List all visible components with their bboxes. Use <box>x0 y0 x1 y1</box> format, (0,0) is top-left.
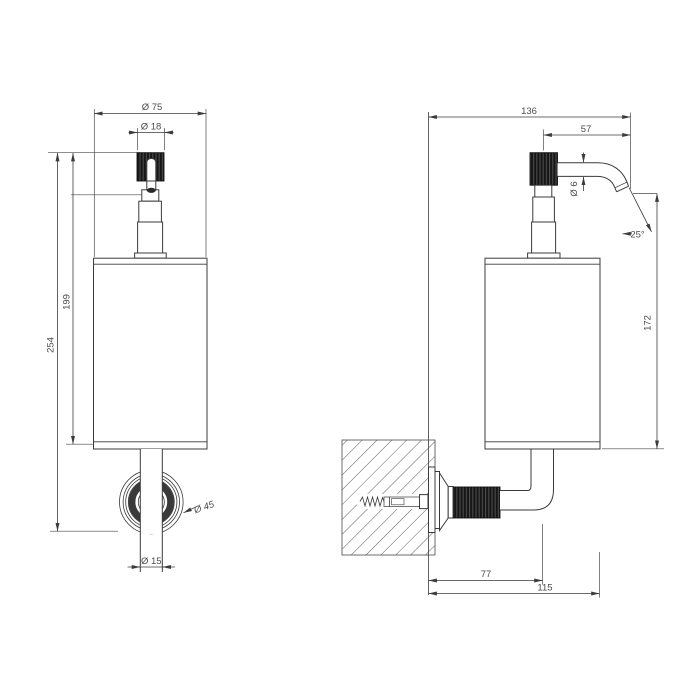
spout-channel-front <box>147 159 156 182</box>
spout-outlet-front <box>147 188 156 193</box>
dim-label-overall-height: 254 <box>46 337 57 353</box>
pump-tube-lower-side <box>532 222 556 253</box>
dim-label-tube-diameter: Ø 15 <box>141 556 162 567</box>
pump-tube-upper-front <box>139 201 162 222</box>
front-view: Ø 75 Ø 18 199 254 Ø 45 <box>46 102 217 572</box>
dim-label-spout-diameter: Ø 6 <box>569 181 580 196</box>
dim-front-flange-diameter: Ø 45 <box>184 499 217 517</box>
technical-drawing-canvas: Ø 75 Ø 18 199 254 Ø 45 <box>0 0 700 700</box>
bottle-body-front <box>94 258 208 449</box>
screw-head <box>420 495 429 509</box>
pump-tube-lower-front <box>138 222 163 253</box>
dim-label-spout-to-base-height: 172 <box>643 315 654 331</box>
wall-screw <box>357 494 434 509</box>
bottle-body-side <box>485 258 600 449</box>
pump-base-flange-front <box>135 253 167 258</box>
elbow-tube-side <box>500 449 554 510</box>
pump-neck-side <box>535 185 552 197</box>
pump-base-flange-side <box>528 253 560 258</box>
dim-label-body-diameter: Ø 75 <box>142 102 163 113</box>
dim-front-pump-height: 199 <box>62 153 95 444</box>
dim-label-overall-depth: 136 <box>521 106 537 117</box>
pump-knob-side <box>530 153 558 186</box>
dim-label-spout-reach: 57 <box>581 124 592 135</box>
dim-front-tube-diameter: Ø 15 <box>128 556 176 567</box>
knurled-collar-side <box>453 487 500 518</box>
dim-side-spout-reach: 57 <box>544 124 631 151</box>
dispenser-technical-drawing: Ø 75 Ø 18 199 254 Ø 45 <box>0 0 700 700</box>
wall-tube-front-fill <box>140 449 162 534</box>
pump-tube-upper-side <box>533 197 555 222</box>
dim-side-wall-to-tube-axis: 77 <box>429 524 543 585</box>
dim-label-wall-to-tube-axis: 77 <box>481 569 492 580</box>
dim-side-spout-angle: 25° <box>623 188 652 241</box>
dim-side-wall-to-body-front: 115 <box>429 552 600 598</box>
side-view: 136 57 Ø 6 25° 172 <box>342 106 664 598</box>
dim-label-pump-height: 199 <box>62 294 73 310</box>
wall-flange-side <box>429 467 501 533</box>
dim-label-knob-diameter: Ø 18 <box>141 122 162 133</box>
dim-front-knob-diameter: Ø 18 <box>129 122 174 151</box>
dim-label-wall-to-body-front: 115 <box>537 583 552 594</box>
dim-label-flange-diameter: Ø 45 <box>192 499 217 517</box>
dim-label-spout-angle: 25° <box>630 230 645 241</box>
